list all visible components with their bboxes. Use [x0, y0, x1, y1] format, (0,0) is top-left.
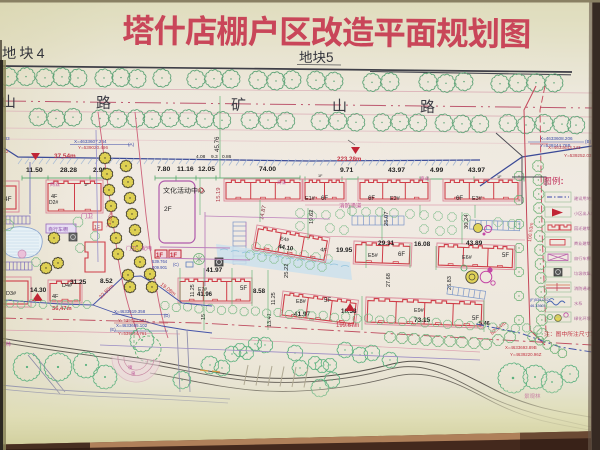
svg-text:12.05: 12.05 [198, 166, 215, 173]
svg-text:19.95: 19.95 [336, 247, 353, 254]
svg-text:27.68: 27.68 [386, 273, 392, 287]
svg-text:E9#: E9# [414, 308, 425, 314]
svg-text:29.31: 29.31 [378, 240, 395, 247]
svg-text:Y=539020.496: Y=539020.496 [78, 145, 108, 150]
svg-text:E8#: E8# [296, 299, 307, 305]
svg-text:25.07: 25.07 [384, 211, 390, 226]
svg-text:43.89: 43.89 [466, 240, 483, 247]
svg-text:4.08: 4.08 [196, 154, 206, 160]
svg-text:E3#: E3# [472, 196, 483, 202]
svg-text:41.97: 41.97 [206, 267, 223, 274]
svg-text:46.33605: 46.33605 [530, 304, 546, 308]
svg-text:X=4633605.102: X=4633605.102 [116, 323, 148, 328]
svg-text:D3#: D3# [6, 291, 17, 297]
svg-text:6F: 6F [368, 196, 375, 202]
svg-text:28.28: 28.28 [60, 167, 77, 174]
svg-text:8.58: 8.58 [253, 288, 266, 295]
svg-text:E1#: E1# [305, 196, 316, 202]
svg-text:Y=4639220.96Z: Y=4639220.96Z [510, 352, 542, 357]
svg-text:539.764: 539.764 [152, 259, 168, 264]
svg-text:25.22: 25.22 [284, 263, 290, 278]
svg-text:(C): (C) [173, 262, 179, 267]
svg-text:D2#: D2# [49, 200, 58, 206]
svg-text:(F)539.052: (F)539.052 [530, 298, 549, 302]
svg-text:6F: 6F [398, 252, 405, 258]
svg-text:5F: 5F [502, 253, 509, 259]
svg-text:30.24: 30.24 [464, 214, 470, 229]
svg-text:X=4633643.243: X=4633643.243 [548, 145, 581, 150]
svg-text:0.86: 0.86 [222, 154, 232, 160]
svg-text:43.97: 43.97 [388, 167, 405, 174]
svg-text:E2#: E2# [390, 196, 401, 202]
svg-text:4: 4 [37, 46, 45, 62]
svg-text:6F: 6F [321, 196, 328, 202]
svg-text:E5#: E5# [368, 253, 379, 259]
svg-text:6F: 6F [456, 196, 463, 202]
svg-text:9.71: 9.71 [340, 167, 353, 174]
svg-text:11.16: 11.16 [177, 166, 194, 173]
svg-text:199.67m: 199.67m [336, 323, 359, 329]
svg-text:4F: 4F [52, 294, 59, 300]
svg-text:1F: 1F [84, 182, 89, 187]
svg-text:74.00: 74.00 [259, 166, 276, 173]
svg-text:X=4633608.206: X=4633608.206 [540, 136, 573, 141]
svg-text:9.3: 9.3 [211, 154, 218, 160]
svg-text:41.96: 41.96 [197, 292, 213, 298]
svg-text:223.28m: 223.28m [337, 156, 362, 163]
svg-text:14.30: 14.30 [30, 287, 47, 294]
svg-text:1F: 1F [497, 175, 502, 179]
svg-text:(D): (D) [164, 313, 170, 318]
svg-text:11.25: 11.25 [190, 284, 196, 297]
svg-text:37,54m: 37,54m [54, 153, 76, 160]
svg-text:5F: 5F [324, 298, 331, 304]
svg-text:15.19: 15.19 [216, 187, 222, 202]
svg-text:11.50: 11.50 [26, 167, 43, 174]
svg-text:45.76: 45.76 [214, 136, 221, 152]
svg-text:2F: 2F [164, 206, 172, 213]
svg-text:E6#: E6# [462, 255, 473, 261]
svg-text:19.62: 19.62 [309, 209, 315, 224]
svg-text:31.25: 31.25 [70, 279, 87, 286]
svg-text::: : [561, 176, 564, 186]
svg-text:11.25: 11.25 [271, 292, 277, 305]
svg-text:5F: 5F [240, 286, 247, 292]
svg-text:4.99: 4.99 [430, 167, 443, 174]
svg-text:1F: 1F [94, 225, 100, 231]
svg-text:009.901: 009.901 [152, 265, 168, 270]
svg-text:1F: 1F [318, 174, 323, 178]
svg-text:16.08: 16.08 [414, 241, 431, 248]
svg-text:X=4633619.358: X=4633619.358 [114, 309, 146, 314]
svg-text:43.97: 43.97 [468, 167, 485, 174]
svg-text:5: 5 [326, 50, 334, 65]
svg-text:7.80: 7.80 [157, 166, 170, 173]
svg-text:X=4633693.89B: X=4633693.89B [505, 345, 537, 350]
